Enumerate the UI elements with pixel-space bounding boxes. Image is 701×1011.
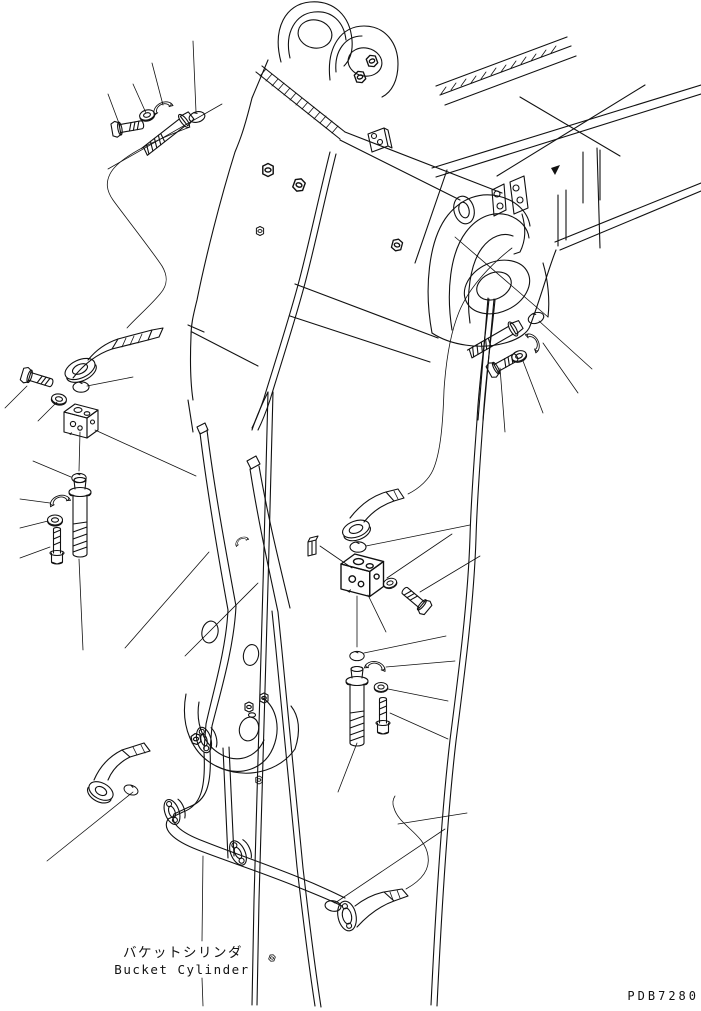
weld-nut-icon (256, 776, 262, 784)
valve-block-icon (64, 404, 98, 438)
weld-nut-icon (292, 177, 306, 193)
hose-bottom (335, 796, 428, 933)
clamp-icon (48, 493, 70, 507)
cylinder-pipes (161, 299, 495, 1006)
bolt-icon (111, 117, 145, 138)
weld-nut-icon (391, 238, 403, 252)
bolt-icon (398, 583, 433, 616)
o-ring-icon (123, 783, 140, 797)
clamp-icon (364, 660, 386, 671)
washer-icon (48, 515, 63, 526)
washer-icon (374, 683, 388, 693)
drawing-code: PDB7280 (627, 989, 699, 1003)
pivot-bolt-icon (260, 693, 268, 703)
fasteners (20, 98, 546, 912)
parts-diagram: バケットシリンダ Bucket Cylinder PDB7280 (0, 0, 701, 1011)
o-ring-icon (73, 382, 89, 392)
weld-nut-icon (256, 227, 263, 236)
clamp-icon (525, 331, 542, 353)
bolt-icon (376, 698, 390, 735)
hose-right-upper (340, 248, 512, 544)
pipe-clip-icon (234, 535, 249, 547)
weld-nut-icon (353, 70, 366, 85)
hose-routing-curve (107, 127, 190, 328)
direction-arrow-icon (551, 165, 560, 175)
long-bolt-icon (69, 478, 91, 558)
hose-left-lower (84, 743, 150, 807)
spacer-icon (308, 536, 318, 556)
pipe-flange-clamp-icon (194, 724, 220, 754)
hose-routing-curve (408, 248, 512, 494)
weld-nut-icon (268, 954, 276, 962)
o-ring-icon (350, 542, 366, 552)
washer-icon (51, 393, 68, 406)
hose-left-upper (62, 127, 190, 387)
weld-nut-icon (263, 164, 273, 177)
hose-routing-curve (393, 796, 428, 889)
weld-nut-icon (365, 54, 378, 69)
o-ring-icon (350, 651, 364, 660)
washer-icon (382, 577, 398, 590)
caption-leader (202, 856, 203, 1006)
hose-clamp-flange (451, 194, 478, 226)
caption-japanese: バケットシリンダ (123, 945, 243, 961)
bolt-icon (50, 528, 64, 565)
bolt-icon (20, 366, 55, 391)
long-bolt-icon (346, 667, 368, 747)
pivot-bolt-icon (245, 702, 253, 712)
caption-english: Bucket Cylinder (114, 962, 249, 977)
pipe-flange-clamp-icon (226, 836, 255, 868)
bolt-icon (485, 349, 521, 379)
valve-block-icon (341, 554, 384, 597)
cylinder-foot-boss (428, 195, 538, 421)
diagram-page: バケットシリンダ Bucket Cylinder PDB7280 (0, 0, 701, 1011)
